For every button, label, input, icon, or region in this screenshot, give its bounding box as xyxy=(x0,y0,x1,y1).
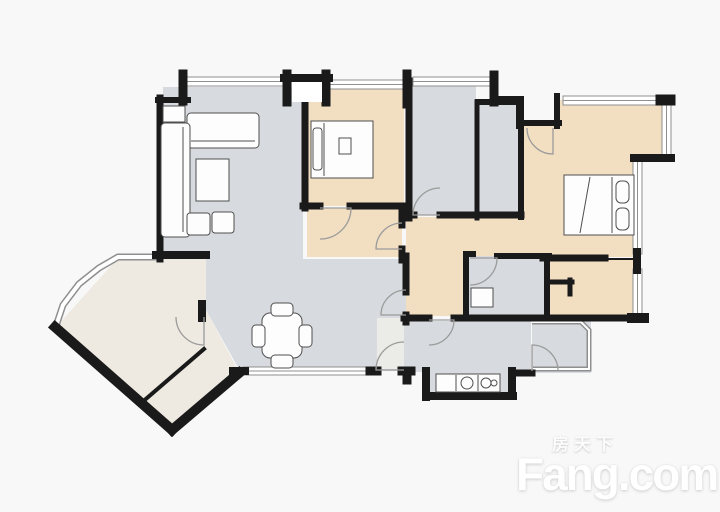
stove-burner-2 xyxy=(491,380,497,386)
sink xyxy=(461,377,473,389)
washing-machine xyxy=(471,288,493,307)
stool-1 xyxy=(187,213,210,235)
room-bedroom-3 xyxy=(546,259,636,318)
bed-2-pillow xyxy=(313,128,322,170)
dining-chair-top xyxy=(271,303,293,316)
dining-chair-bottom xyxy=(271,355,293,368)
dining-table xyxy=(262,313,302,358)
dining-chair-right xyxy=(299,325,312,347)
sofa-main xyxy=(187,113,259,148)
room-duct-room xyxy=(479,104,519,215)
watermark-logo: Fang.com xyxy=(516,451,720,497)
stool-2 xyxy=(212,212,234,233)
master-bed-pillow-2 xyxy=(616,208,629,230)
dining-chair-left xyxy=(252,325,265,347)
sofa-chaise xyxy=(161,123,190,237)
stove-burner-1 xyxy=(481,378,491,388)
master-bed-pillow-1 xyxy=(616,181,629,203)
watermark: 房天下 Fang.com xyxy=(516,436,720,497)
pier-infill xyxy=(292,82,322,102)
side-table xyxy=(163,106,185,122)
room-bathroom-2 xyxy=(468,256,547,317)
room-entry-strip xyxy=(377,318,404,369)
bed-2-item xyxy=(339,138,351,154)
coffee-table xyxy=(196,159,229,201)
